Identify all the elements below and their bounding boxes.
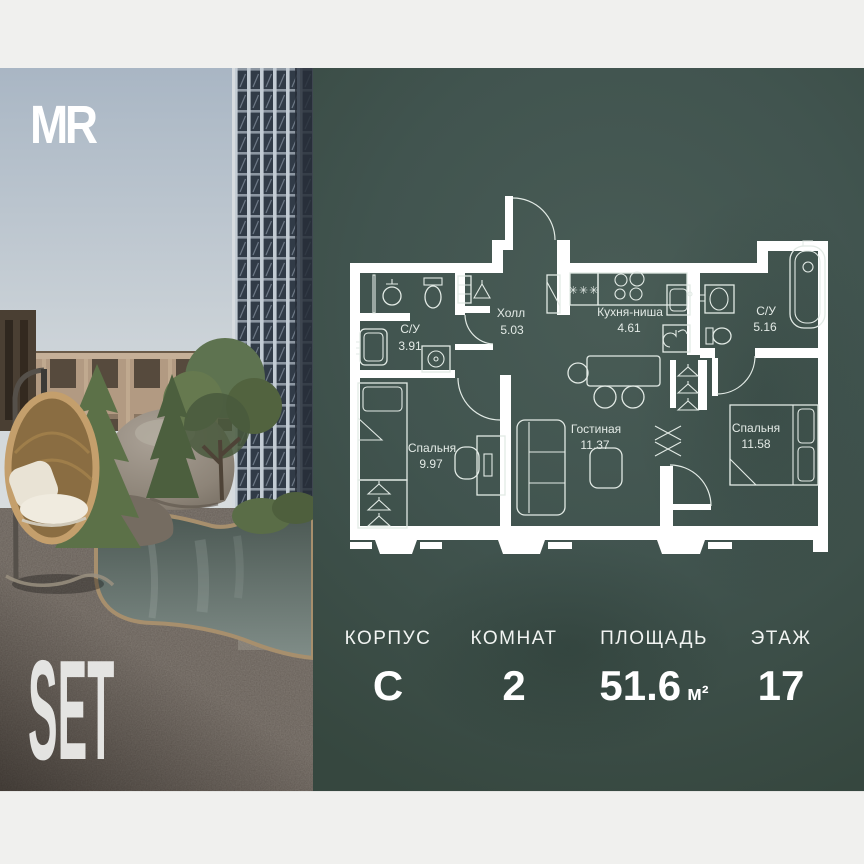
room-label-bedroom2: Спальня 11.58	[732, 421, 780, 451]
bottom-white-band	[0, 791, 864, 864]
room-label-bathroom1: С/У 3.91	[398, 322, 422, 353]
svg-text:11.58: 11.58	[741, 437, 770, 451]
sliding-door-icon	[655, 426, 681, 456]
toilet-icon	[713, 328, 731, 344]
svg-text:Спальня: Спальня	[408, 441, 456, 455]
svg-text:4.61: 4.61	[617, 321, 641, 335]
svg-text:С/У: С/У	[756, 304, 776, 318]
monitor-icon	[484, 454, 492, 476]
top-white-band	[0, 0, 864, 69]
floorplan-panel: ✳✳✳	[313, 68, 864, 791]
toilet-icon	[425, 286, 441, 308]
coffee-table-icon	[590, 448, 622, 488]
room-label-kitchen: Кухня-ниша 4.61	[597, 305, 663, 335]
svg-text:Спальня: Спальня	[732, 421, 780, 435]
svg-text:Гостиная: Гостиная	[571, 422, 621, 436]
room-label-bathroom2: С/У 5.16	[753, 304, 777, 334]
chair-icon	[622, 386, 644, 408]
chair-icon	[594, 386, 616, 408]
apartment-floor-plan: ✳✳✳	[348, 182, 834, 562]
washbasin-icon	[705, 285, 734, 313]
svg-text:5.16: 5.16	[753, 320, 777, 334]
stat-label: КОРПУС	[345, 628, 432, 650]
stat-value: 2	[471, 662, 558, 710]
bedroom1-furniture	[358, 383, 505, 528]
wardrobe-hangers-icon	[678, 364, 698, 410]
stat-label: ПЛОЩАДЬ	[599, 628, 708, 650]
freezer-marks: ✳✳✳	[569, 285, 600, 297]
wardrobe-hangers-icon	[358, 480, 407, 528]
room-label-bedroom1: Спальня 9.97	[408, 441, 456, 471]
stat-area: ПЛОЩАДЬ 51.6м²	[599, 628, 708, 710]
chair-icon	[568, 363, 588, 383]
listing-card: MR SET	[0, 0, 864, 864]
stat-value: 51.6м²	[599, 662, 708, 710]
mr-brand-logo: MR	[30, 98, 95, 152]
room-label-hall: Холл 5.03	[497, 306, 525, 337]
stat-floor: ЭТАЖ 17	[751, 628, 812, 710]
svg-text:С/У: С/У	[400, 322, 420, 336]
stat-value: C	[345, 662, 432, 710]
svg-text:Кухня-ниша: Кухня-ниша	[597, 305, 663, 319]
bed-icon	[358, 383, 407, 480]
stat-rooms: КОМНАТ 2	[471, 628, 558, 710]
area-unit: м²	[687, 683, 708, 705]
residential-tower	[232, 68, 313, 530]
window-sills	[350, 540, 828, 554]
svg-text:9.97: 9.97	[419, 457, 443, 471]
desk-chair-icon	[455, 447, 479, 479]
svg-text:11.37: 11.37	[580, 438, 609, 452]
stat-label: ЭТАЖ	[751, 628, 812, 650]
washing-machine-icon	[422, 346, 450, 372]
sofa-icon	[517, 420, 565, 515]
dining-table-icon	[587, 356, 660, 386]
stat-building: КОРПУС C	[345, 628, 432, 710]
svg-text:5.03: 5.03	[500, 323, 524, 337]
stove-icon	[615, 272, 644, 300]
set-project-logo: SET	[28, 640, 114, 782]
stat-label: КОМНАТ	[471, 628, 558, 650]
interior-walls	[350, 273, 818, 528]
svg-text:3.91: 3.91	[398, 339, 422, 353]
svg-text:Холл: Холл	[497, 306, 525, 320]
apartment-stats: КОРПУС C КОМНАТ 2 ПЛОЩАДЬ 51.6м² ЭТАЖ 17	[313, 628, 864, 748]
dishwasher-icon	[663, 325, 690, 352]
washbasin-icon	[383, 287, 401, 305]
hanger-icon	[474, 280, 490, 298]
courtyard-photo: MR SET	[0, 68, 313, 791]
stat-value: 17	[751, 662, 812, 710]
